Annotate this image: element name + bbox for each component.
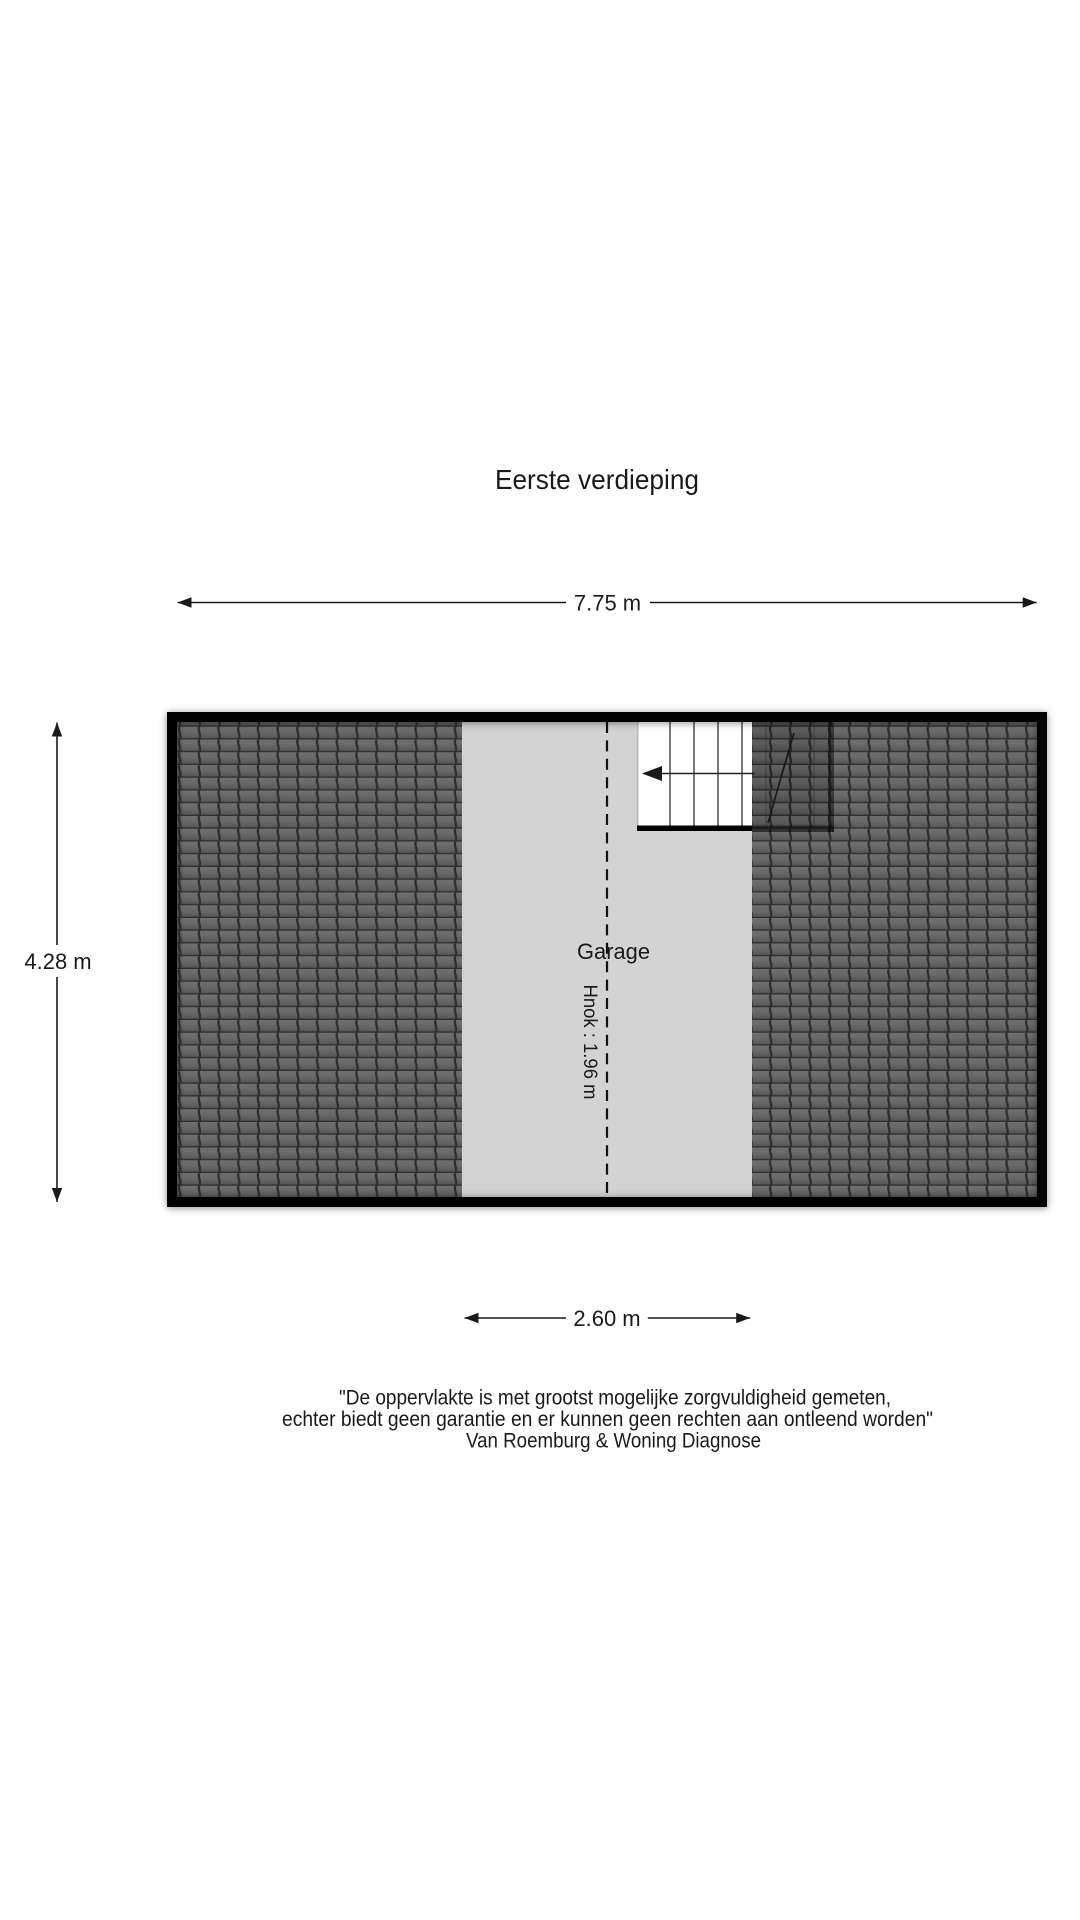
- svg-text:Van Roemburg & Woning Diagnose: Van Roemburg & Woning Diagnose: [466, 1428, 761, 1452]
- svg-text:Hnok : 1.96 m: Hnok : 1.96 m: [579, 985, 600, 1100]
- svg-text:2.60 m: 2.60 m: [573, 1306, 640, 1331]
- svg-text:"De oppervlakte is met grootst: "De oppervlakte is met grootst mogelijke…: [339, 1385, 891, 1409]
- svg-text:echter biedt geen garantie en: echter biedt geen garantie en er kunnen …: [282, 1407, 933, 1431]
- svg-text:Garage: Garage: [577, 939, 650, 964]
- svg-text:4.28 m: 4.28 m: [24, 949, 91, 974]
- svg-text:7.75 m: 7.75 m: [574, 590, 641, 615]
- svg-text:Eerste verdieping: Eerste verdieping: [495, 464, 699, 495]
